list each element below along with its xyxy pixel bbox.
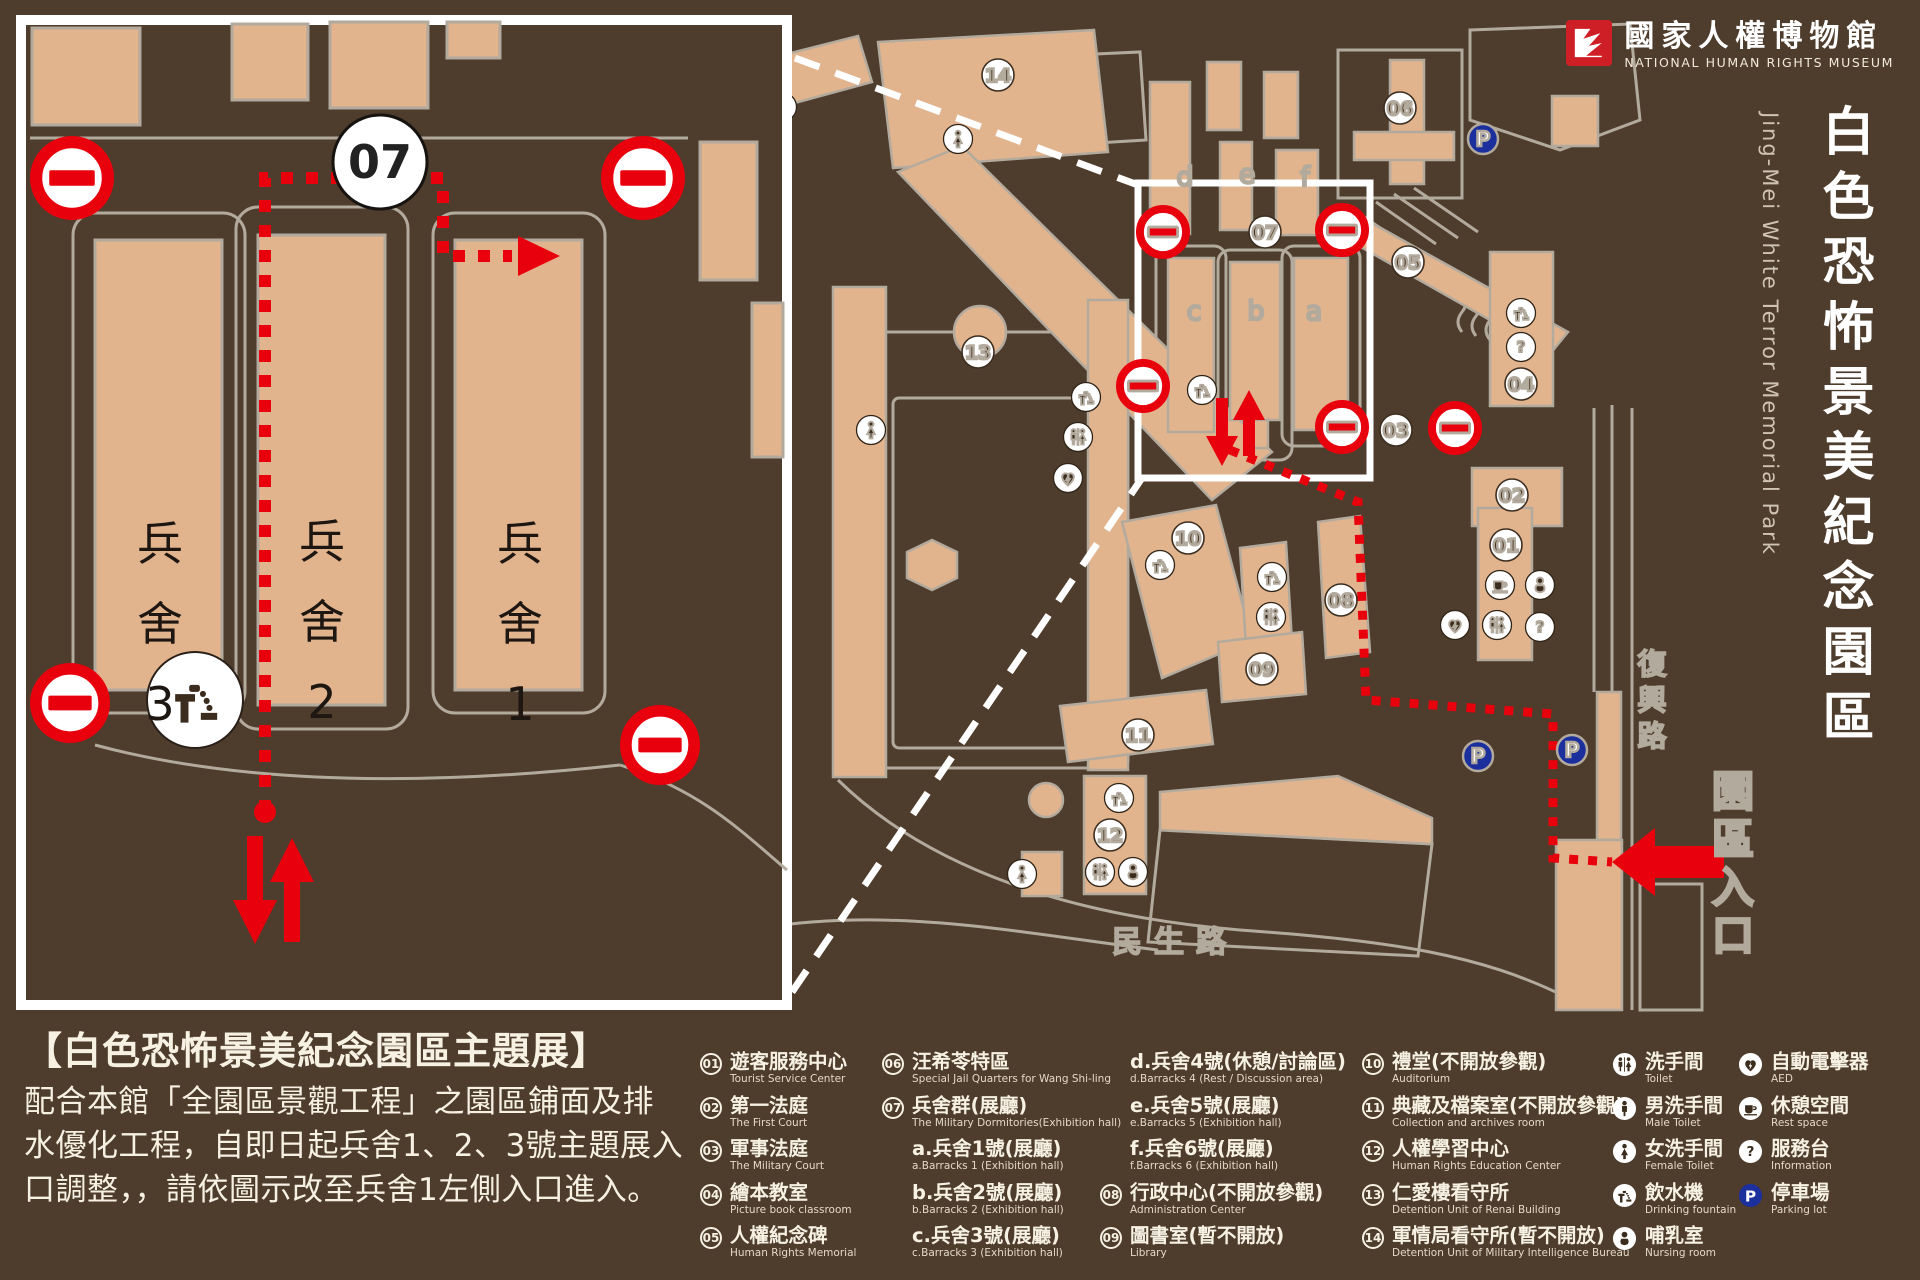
legend-label-zh: 飲水機 xyxy=(1645,1183,1736,1203)
svg-text:09: 09 xyxy=(1249,659,1275,681)
museum-name-en: NATIONAL HUMAN RIGHTS MUSEUM xyxy=(1624,55,1894,70)
fountain-icon xyxy=(1507,299,1536,328)
legend-badge: 02 xyxy=(700,1097,722,1119)
road-label-fuxing: 路 xyxy=(1637,719,1666,753)
person-f-icon xyxy=(857,416,886,445)
legend-item: 11典藏及檔案室(不開放參觀)Collection and archives r… xyxy=(1362,1096,1630,1140)
fountain-icon xyxy=(1188,376,1217,405)
legend-item: 09圖書室(暫不開放)Library xyxy=(1100,1226,1346,1270)
map-marker-12: 12 xyxy=(1094,819,1126,851)
legend-label-zh: 服務台 xyxy=(1771,1139,1832,1159)
legend-item: 10禮堂(不開放參觀)Auditorium xyxy=(1362,1052,1630,1096)
aed-icon xyxy=(1054,464,1083,493)
parking-icon: P xyxy=(1463,741,1493,771)
legend-badge: 04 xyxy=(700,1184,722,1206)
building-letter-f: f xyxy=(1300,162,1311,193)
entrance-label: 園區入口 xyxy=(1712,767,1754,960)
legend-badge: 01 xyxy=(700,1053,722,1075)
exhibition-notice: 【白色恐怖景美紀念園區主題展】 配合本館「全園區景觀工程」之園區鋪面及排水優化工… xyxy=(24,1030,684,1213)
road-label-minsheng: 民生路 xyxy=(1112,925,1238,960)
legend-label-en: Special Jail Quarters for Wang Shi-ling xyxy=(912,1074,1111,1086)
toilet-icon xyxy=(1064,423,1093,452)
legend-badge: 07 xyxy=(882,1097,904,1119)
legend-label-zh: 軍情局看守所(暫不開放) xyxy=(1392,1226,1630,1246)
legend-label-en: d.Barracks 4 (Rest / Discussion area) xyxy=(1130,1074,1346,1086)
legend-item: 服務台Information xyxy=(1738,1139,1869,1183)
svg-text:04: 04 xyxy=(1508,374,1534,396)
legend-label-zh: 男洗手間 xyxy=(1645,1096,1723,1116)
legend-item: f.兵舍6號(展廳)f.Barracks 6 (Exhibition hall) xyxy=(1130,1139,1346,1183)
legend-label-zh: 洗手間 xyxy=(1645,1052,1704,1072)
barracks-label-char: 舍 xyxy=(137,597,183,651)
legend-label-zh: 休憩空間 xyxy=(1771,1096,1849,1116)
legend-item: 飲水機Drinking fountain xyxy=(1612,1183,1736,1227)
entrance-arrow xyxy=(1612,828,1724,896)
legend-item: 哺乳室Nursing room xyxy=(1612,1226,1736,1270)
legend-item: 女洗手間Female Toilet xyxy=(1612,1139,1736,1183)
no-entry-icon xyxy=(1120,363,1166,409)
legend-label-en: Auditorium xyxy=(1392,1074,1546,1086)
svg-text:07: 07 xyxy=(348,135,412,189)
road-label-fuxing: 復 xyxy=(1637,647,1666,681)
route-start-dot xyxy=(254,801,276,823)
map-marker-04: 04 xyxy=(1505,368,1537,400)
map-marker-06: 06 xyxy=(1384,92,1416,124)
legend-label-en: Administration Center xyxy=(1130,1205,1323,1217)
park-title-vertical-en: Jing-Mei White Terror Memorial Park xyxy=(1758,112,1782,672)
legend-badge: 10 xyxy=(1362,1053,1384,1075)
rest-icon xyxy=(1738,1096,1763,1121)
map-marker-03: 03 xyxy=(1380,414,1412,446)
barracks-label-char: 兵 xyxy=(299,515,345,569)
fountain-icon xyxy=(1146,551,1175,580)
legend-label-en: a.Barracks 1 (Exhibition hall) xyxy=(912,1161,1064,1173)
legend-label-en: Rest space xyxy=(1771,1118,1849,1130)
legend-badge: 03 xyxy=(700,1140,722,1162)
legend-label-en: f.Barracks 6 (Exhibition hall) xyxy=(1130,1161,1278,1173)
legend-item: d.兵舍4號(休憩/討論區)d.Barracks 4 (Rest / Discu… xyxy=(1130,1052,1346,1096)
legend-label-zh: 軍事法庭 xyxy=(730,1139,824,1159)
museum-logo: 國家人權博物館 NATIONAL HUMAN RIGHTS MUSEUM xyxy=(1566,20,1894,70)
legend-item: P停車場Parking lot xyxy=(1738,1183,1869,1227)
legend-badge: 06 xyxy=(882,1053,904,1075)
legend-item: 02第一法庭The First Court xyxy=(700,1096,856,1140)
barracks-label-char: 舍 xyxy=(299,595,345,649)
no-entry-icon xyxy=(626,711,694,779)
toilet-icon xyxy=(1612,1052,1637,1077)
toilet-icon xyxy=(1257,603,1286,632)
no-entry-icon xyxy=(1319,404,1365,450)
legend-item: 13仁愛樓看守所Detention Unit of Renai Building xyxy=(1362,1183,1630,1227)
legend-label-zh: 女洗手間 xyxy=(1645,1139,1723,1159)
barracks-label-char: 2 xyxy=(307,675,336,729)
legend-label-zh: 遊客服務中心 xyxy=(730,1052,847,1072)
museum-logo-icon xyxy=(1566,20,1612,66)
svg-text:14: 14 xyxy=(985,65,1011,87)
svg-text:P: P xyxy=(1745,1187,1756,1205)
legend-label-zh: 禮堂(不開放參觀) xyxy=(1392,1052,1546,1072)
svg-text:10: 10 xyxy=(1175,528,1201,550)
map-marker-08: 08 xyxy=(1325,584,1357,616)
info-icon xyxy=(1507,333,1536,362)
legend-label-en: Tourist Service Center xyxy=(730,1074,847,1086)
legend-column-1: 01遊客服務中心Tourist Service Center02第一法庭The … xyxy=(700,1052,856,1270)
svg-text:08: 08 xyxy=(1328,590,1354,612)
legend-label-zh: b.兵舍2號(展廳) xyxy=(912,1183,1064,1203)
svg-text:02: 02 xyxy=(1499,485,1525,507)
legend-item: 05人權紀念碑Human Rights Memorial xyxy=(700,1226,856,1270)
svg-text:03: 03 xyxy=(1383,420,1409,442)
fountain-icon xyxy=(1258,563,1287,592)
legend-label-zh: 典藏及檔案室(不開放參觀) xyxy=(1392,1096,1624,1116)
building-letter-b: b xyxy=(1247,296,1264,327)
svg-text:06: 06 xyxy=(1387,98,1413,120)
map-marker-01: 01 xyxy=(1490,529,1522,561)
legend-badge: 08 xyxy=(1100,1184,1122,1206)
museum-name-zh: 國家人權博物館 xyxy=(1624,20,1894,53)
svg-text:12: 12 xyxy=(1097,825,1123,847)
barracks-label-char: 兵 xyxy=(137,517,183,571)
legend-column-5: 洗手間Toilet男洗手間Male Toilet女洗手間Female Toile… xyxy=(1612,1052,1736,1270)
entrance-label-char: 區 xyxy=(1712,815,1754,864)
notice-heading: 【白色恐怖景美紀念園區主題展】 xyxy=(24,1030,684,1074)
legend-item: 14軍情局看守所(暫不開放)Detention Unit of Military… xyxy=(1362,1226,1630,1270)
legend-label-en: Toilet xyxy=(1645,1074,1704,1086)
legend-label-zh: 人權紀念碑 xyxy=(730,1226,856,1246)
info-icon xyxy=(1526,613,1555,642)
legend-label-en: Picture book classroom xyxy=(730,1205,852,1217)
legend-label-zh: 行政中心(不開放參觀) xyxy=(1130,1183,1323,1203)
legend-label-en: Detention Unit of Military Intelligence … xyxy=(1392,1248,1630,1260)
park-title-vertical-zh: 白色恐怖景美紀念園區 xyxy=(1806,104,1881,804)
legend-badge: 05 xyxy=(700,1227,722,1249)
notice-body: 配合本館「全園區景觀工程」之園區鋪面及排水優化工程，自即日起兵舍1、2、3號主題… xyxy=(24,1080,684,1213)
legend-label-en: e.Barracks 5 (Exhibition hall) xyxy=(1130,1118,1282,1130)
legend-label-en: Information xyxy=(1771,1161,1832,1173)
legend-label-zh: 自動電擊器 xyxy=(1771,1052,1869,1072)
person-f-icon xyxy=(1008,860,1037,889)
legend-label-zh: 仁愛樓看守所 xyxy=(1392,1183,1561,1203)
inset-map: 07 兵舍3兵舍2兵舍1 xyxy=(21,20,787,1005)
aed-icon xyxy=(1738,1052,1763,1077)
legend-label-zh: 繪本教室 xyxy=(730,1183,852,1203)
svg-text:05: 05 xyxy=(1395,252,1421,274)
legend-item: 01遊客服務中心Tourist Service Center xyxy=(700,1052,856,1096)
map-marker-07: 07 xyxy=(1249,216,1281,248)
legend-label-en: The Military Dormitories(Exhibition hall… xyxy=(912,1118,1121,1130)
fountain-icon xyxy=(1072,383,1101,412)
fountain-icon xyxy=(1105,784,1134,813)
legend-badge: 14 xyxy=(1362,1227,1384,1249)
legend-label-zh: c.兵舍3號(展廳) xyxy=(912,1226,1063,1246)
no-entry-icon xyxy=(36,142,108,214)
rest-icon xyxy=(1486,571,1515,600)
svg-text:01: 01 xyxy=(1493,535,1519,557)
legend-label-en: The First Court xyxy=(730,1118,808,1130)
legend-badge: 12 xyxy=(1362,1140,1384,1162)
building-letter-c: c xyxy=(1187,296,1202,327)
legend-label-en: Drinking fountain xyxy=(1645,1205,1736,1217)
barracks-label-char: 舍 xyxy=(497,597,543,651)
legend-item: 12人權學習中心Human Rights Education Center xyxy=(1362,1139,1630,1183)
entrance-label-char: 園 xyxy=(1712,767,1754,816)
legend-label-zh: a.兵舍1號(展廳) xyxy=(912,1139,1064,1159)
legend-item: a.兵舍1號(展廳)a.Barracks 1 (Exhibition hall) xyxy=(912,1139,1121,1183)
legend-item: 洗手間Toilet xyxy=(1612,1052,1736,1096)
legend-item: 男洗手間Male Toilet xyxy=(1612,1096,1736,1140)
map-marker-09: 09 xyxy=(1246,653,1278,685)
no-entry-icon xyxy=(1140,209,1186,255)
legend-item: c.兵舍3號(展廳)c.Barracks 3 (Exhibition hall) xyxy=(912,1226,1121,1270)
map-marker-05: 05 xyxy=(1392,246,1424,278)
legend-label-en: Parking lot xyxy=(1771,1205,1830,1217)
svg-text:11: 11 xyxy=(1125,725,1151,747)
legend-badge: 11 xyxy=(1362,1097,1384,1119)
svg-text:07: 07 xyxy=(1252,222,1278,244)
legend-label-en: Female Toilet xyxy=(1645,1161,1723,1173)
baby-icon xyxy=(1526,571,1555,600)
road-label-fuxing: 興 xyxy=(1637,683,1666,717)
person-f-icon xyxy=(944,125,973,154)
toilet-icon xyxy=(1483,611,1512,640)
no-entry-icon xyxy=(1319,207,1365,253)
legend-item: 04繪本教室Picture book classroom xyxy=(700,1183,856,1227)
map-marker-02: 02 xyxy=(1496,479,1528,511)
legend-label-zh: 兵舍群(展廳) xyxy=(912,1096,1121,1116)
parking-icon: P xyxy=(1468,124,1498,154)
no-entry-icon xyxy=(1432,405,1478,451)
no-entry-icon xyxy=(36,669,104,737)
baby-icon xyxy=(1612,1226,1637,1251)
legend-badge: 13 xyxy=(1362,1184,1384,1206)
person-icon xyxy=(1612,1096,1637,1121)
legend-item: 07兵舍群(展廳)The Military Dormitories(Exhibi… xyxy=(882,1096,1121,1140)
map-marker-14: 14 xyxy=(982,59,1014,91)
main-map: 0102030405060708091011121314 defcba PPP … xyxy=(705,24,1754,1010)
legend-item: e.兵舍5號(展廳)e.Barracks 5 (Exhibition hall) xyxy=(1130,1096,1346,1140)
legend-item: 08行政中心(不開放參觀)Administration Center xyxy=(1100,1183,1346,1227)
legend-label-zh: d.兵舍4號(休憩/討論區) xyxy=(1130,1052,1346,1072)
person-f-icon xyxy=(1612,1139,1637,1164)
legend-item: 03軍事法庭The Military Court xyxy=(700,1139,856,1183)
aed-icon xyxy=(1441,611,1470,640)
legend-label-zh: 哺乳室 xyxy=(1645,1226,1716,1246)
legend-label-en: Male Toilet xyxy=(1645,1118,1723,1130)
map-marker-13: 13 xyxy=(962,336,994,368)
legend-label-en: Human Rights Memorial xyxy=(730,1248,856,1260)
info-icon xyxy=(1738,1139,1763,1164)
map-marker-11: 11 xyxy=(1122,719,1154,751)
building-letter-d: d xyxy=(1176,162,1193,193)
legend-label-en: AED xyxy=(1771,1074,1869,1086)
legend-column-6: 自動電擊器AED休憩空間Rest space服務台InformationP停車場… xyxy=(1738,1052,1869,1226)
legend-item: 自動電擊器AED xyxy=(1738,1052,1869,1096)
svg-text:P: P xyxy=(1565,738,1580,762)
map-marker-10: 10 xyxy=(1172,522,1204,554)
legend-label-en: Library xyxy=(1130,1248,1284,1260)
legend-label-en: Collection and archives room xyxy=(1392,1118,1624,1130)
parking-icon: P xyxy=(1738,1183,1763,1208)
svg-text:P: P xyxy=(1476,127,1491,151)
legend-item: 休憩空間Rest space xyxy=(1738,1096,1869,1140)
legend-label-zh: 汪希苓特區 xyxy=(912,1052,1111,1072)
legend-label-zh: 停車場 xyxy=(1771,1183,1830,1203)
barracks-label-char: 3 xyxy=(145,677,174,731)
legend-label-zh: 人權學習中心 xyxy=(1392,1139,1561,1159)
barracks-label-char: 1 xyxy=(505,677,534,731)
legend-column-2: 06汪希苓特區Special Jail Quarters for Wang Sh… xyxy=(882,1052,1121,1270)
legend-label-en: b.Barracks 2 (Exhibition hall) xyxy=(912,1205,1064,1217)
legend-column-4: 10禮堂(不開放參觀)Auditorium11典藏及檔案室(不開放參觀)Coll… xyxy=(1362,1052,1630,1270)
legend-label-en: The Military Court xyxy=(730,1161,824,1173)
legend-item: b.兵舍2號(展廳)b.Barracks 2 (Exhibition hall) xyxy=(912,1183,1121,1227)
legend-badge: 09 xyxy=(1100,1227,1122,1249)
building-letter-e: e xyxy=(1239,159,1256,190)
legend-label-zh: e.兵舍5號(展廳) xyxy=(1130,1096,1282,1116)
legend-label-zh: f.兵舍6號(展廳) xyxy=(1130,1139,1278,1159)
legend-label-en: Human Rights Education Center xyxy=(1392,1161,1561,1173)
parking-markers: PPP xyxy=(1463,124,1587,771)
building-letter-a: a xyxy=(1306,296,1323,327)
barracks-label-char: 兵 xyxy=(497,517,543,571)
no-entry-icon xyxy=(607,142,679,214)
svg-text:P: P xyxy=(1471,744,1486,768)
legend-label-en: Nursing room xyxy=(1645,1248,1716,1260)
baby-icon xyxy=(1119,858,1148,887)
entrance-label-char: 口 xyxy=(1712,911,1754,960)
entrance-label-char: 入 xyxy=(1712,863,1754,912)
legend-label-en: c.Barracks 3 (Exhibition hall) xyxy=(912,1248,1063,1260)
legend-label-en: Detention Unit of Renai Building xyxy=(1392,1205,1561,1217)
legend-label-zh: 圖書室(暫不開放) xyxy=(1130,1226,1284,1246)
svg-text:13: 13 xyxy=(965,342,991,364)
fountain-icon xyxy=(1612,1183,1637,1208)
inset-07-marker: 07 xyxy=(333,115,427,209)
legend-item: 06汪希苓特區Special Jail Quarters for Wang Sh… xyxy=(882,1052,1121,1096)
toilet-icon xyxy=(1086,858,1115,887)
legend-label-zh: 第一法庭 xyxy=(730,1096,808,1116)
legend-column-3: d.兵舍4號(休憩/討論區)d.Barracks 4 (Rest / Discu… xyxy=(1100,1052,1346,1270)
parking-icon: P xyxy=(1557,735,1587,765)
